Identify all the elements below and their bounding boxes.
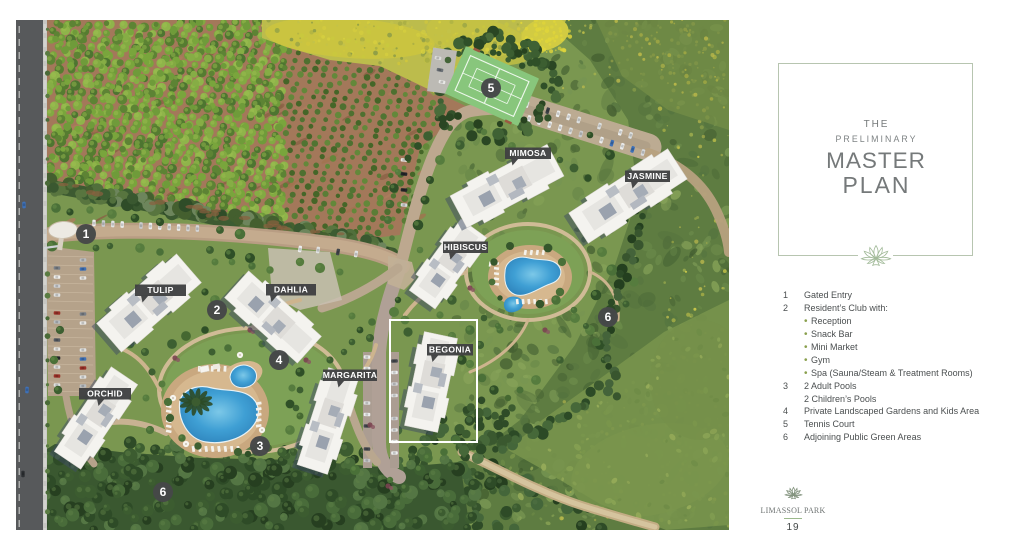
svg-text:MARGARITA: MARGARITA <box>323 370 378 380</box>
svg-text:ORCHID: ORCHID <box>87 389 123 399</box>
svg-text:2: 2 <box>214 303 221 317</box>
svg-text:TULIP: TULIP <box>147 285 173 295</box>
svg-text:HIBISCUS: HIBISCUS <box>444 242 487 252</box>
svg-text:MIMOSA: MIMOSA <box>509 148 546 158</box>
svg-text:BEGONIA: BEGONIA <box>429 345 471 355</box>
svg-text:DAHLIA: DAHLIA <box>274 285 308 295</box>
svg-text:JASMINE: JASMINE <box>627 171 667 181</box>
svg-text:1: 1 <box>83 227 90 241</box>
